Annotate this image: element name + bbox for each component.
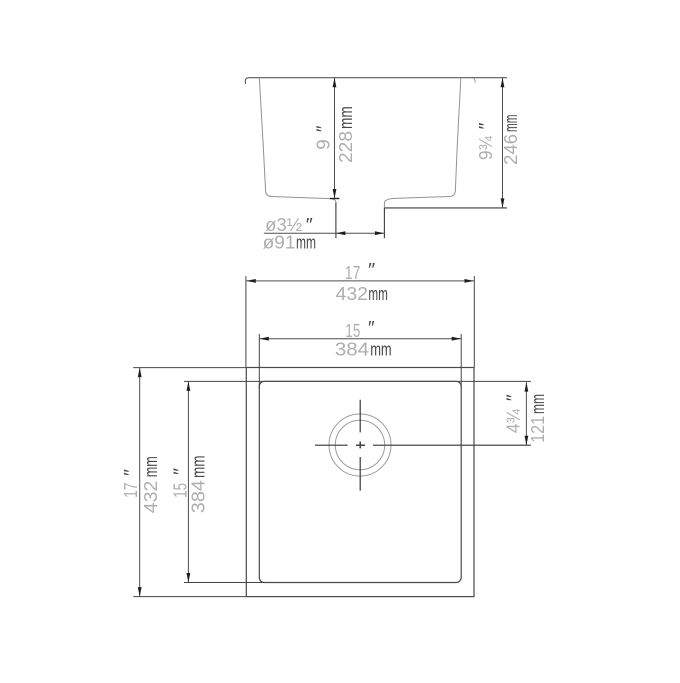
svg-text:″: ″ <box>368 260 376 280</box>
svg-text:384: 384 <box>335 340 369 360</box>
svg-text:384: 384 <box>188 480 208 513</box>
svg-text:432: 432 <box>141 481 161 514</box>
svg-text:9: 9 <box>313 139 333 150</box>
svg-text:15: 15 <box>345 321 360 341</box>
svg-text:mm: mm <box>336 106 356 129</box>
svg-text:″: ″ <box>368 318 375 338</box>
svg-text:″: ″ <box>313 125 333 132</box>
svg-text:121: 121 <box>528 416 548 443</box>
svg-text:4¾: 4¾ <box>504 408 524 433</box>
svg-text:17: 17 <box>121 483 141 498</box>
svg-text:228: 228 <box>336 131 356 163</box>
svg-text:17: 17 <box>345 263 360 283</box>
svg-text:mm: mm <box>188 455 208 478</box>
svg-text:″: ″ <box>121 468 141 476</box>
svg-text:″: ″ <box>476 122 496 130</box>
svg-text:mm: mm <box>528 394 548 414</box>
svg-text:mm: mm <box>370 340 392 360</box>
svg-text:mm: mm <box>141 456 161 477</box>
svg-text:432: 432 <box>336 284 369 304</box>
svg-text:ø91: ø91 <box>263 233 296 253</box>
svg-text:9¾: 9¾ <box>476 135 496 160</box>
svg-text:″: ″ <box>504 394 524 402</box>
svg-text:mm: mm <box>296 233 316 253</box>
svg-text:mm: mm <box>368 284 388 304</box>
svg-text:mm: mm <box>501 115 521 132</box>
svg-text:246: 246 <box>501 134 521 165</box>
